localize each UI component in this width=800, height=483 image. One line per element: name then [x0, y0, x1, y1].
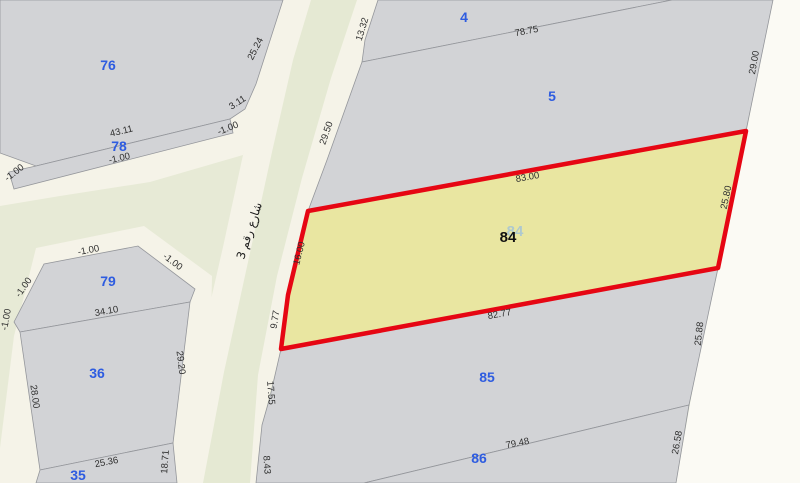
- map-canvas[interactable]: 57 -1.00 43.11 -1.00 25.24 3.11 -1.00 13…: [0, 0, 800, 483]
- dim-label: 8.43: [260, 455, 272, 474]
- map-viewport: 57 -1.00 43.11 -1.00 25.24 3.11 -1.00 13…: [0, 0, 800, 483]
- parcel-36-label: 36: [89, 365, 105, 381]
- dim-label: 18.71: [159, 450, 172, 474]
- parcel-4-label: 4: [460, 9, 468, 25]
- dim-label: 17.55: [264, 381, 277, 405]
- parcel-85-label: 85: [479, 369, 495, 385]
- parcel-78-label: 78: [111, 138, 127, 154]
- parcel-84-label: 84: [500, 229, 517, 246]
- parcel-79-label: 79: [100, 273, 116, 289]
- parcel-35-label: 35: [70, 467, 86, 483]
- parcel-86-label: 86: [471, 450, 487, 466]
- parcel-76-label: 76: [100, 57, 116, 73]
- parcel-5-label: 5: [548, 88, 556, 104]
